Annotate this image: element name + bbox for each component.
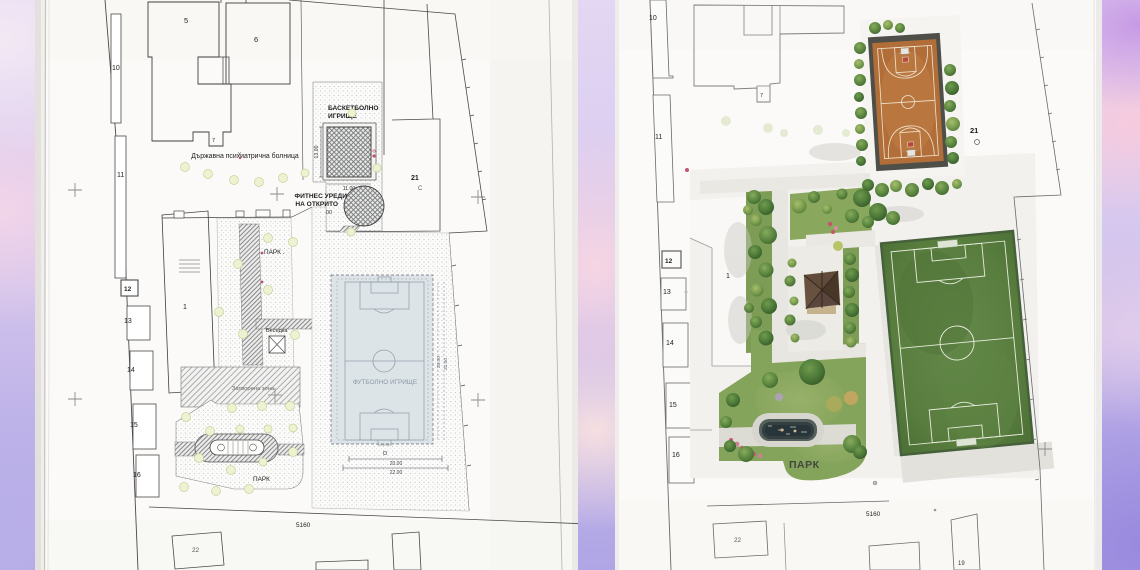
svg-text:15: 15 xyxy=(130,422,138,429)
svg-text:22: 22 xyxy=(734,537,742,544)
svg-text:11: 11 xyxy=(117,172,124,179)
svg-text:11: 11 xyxy=(655,134,662,141)
svg-text:20.00: 20.00 xyxy=(390,461,403,467)
svg-text:13.00: 13.00 xyxy=(314,145,320,158)
svg-text:ФУТБОЛНО ИГРИЩЕ: ФУТБОЛНО ИГРИЩЕ xyxy=(353,379,417,386)
svg-text:7: 7 xyxy=(212,138,215,144)
svg-text:14: 14 xyxy=(666,340,674,347)
svg-text:21: 21 xyxy=(411,175,419,182)
svg-text:19: 19 xyxy=(958,561,965,567)
svg-text:5: 5 xyxy=(184,16,188,25)
svg-text:13: 13 xyxy=(663,289,671,296)
svg-text:16: 16 xyxy=(672,452,680,459)
svg-text:ПАРК: ПАРК xyxy=(253,476,270,483)
svg-text:C: C xyxy=(418,186,423,192)
svg-text:Затворена зона: Затворена зона xyxy=(232,386,275,392)
svg-text:7: 7 xyxy=(760,93,763,99)
svg-text:ФИТНЕС УРЕДИ: ФИТНЕС УРЕДИ xyxy=(295,193,348,200)
svg-text:10: 10 xyxy=(112,65,120,72)
svg-text:22.00: 22.00 xyxy=(390,470,403,476)
svg-text:32.00: 32.00 xyxy=(443,358,449,370)
svg-text:ПАРК: ПАРК xyxy=(789,459,820,471)
svg-text:14: 14 xyxy=(127,367,135,374)
svg-text:30.00: 30.00 xyxy=(436,356,442,368)
svg-text:12: 12 xyxy=(665,258,673,265)
svg-text:5160: 5160 xyxy=(296,522,311,529)
svg-text:16: 16 xyxy=(133,472,141,479)
svg-text:ПАРК .: ПАРК . xyxy=(264,249,285,256)
svg-text:Беседка: Беседка xyxy=(266,328,288,334)
svg-text:1: 1 xyxy=(183,304,187,311)
svg-text:15: 15 xyxy=(669,402,677,409)
svg-text:22: 22 xyxy=(192,547,200,554)
svg-text:5160: 5160 xyxy=(866,511,881,518)
svg-text:10: 10 xyxy=(649,15,657,22)
svg-text:13: 13 xyxy=(124,318,132,325)
svg-text:1: 1 xyxy=(726,273,730,280)
svg-text:21: 21 xyxy=(970,126,978,135)
svg-text:6: 6 xyxy=(254,35,258,44)
svg-text:Държавна психиатрична болница: Държавна психиатрична болница xyxy=(191,152,299,160)
svg-text:12: 12 xyxy=(124,286,132,293)
